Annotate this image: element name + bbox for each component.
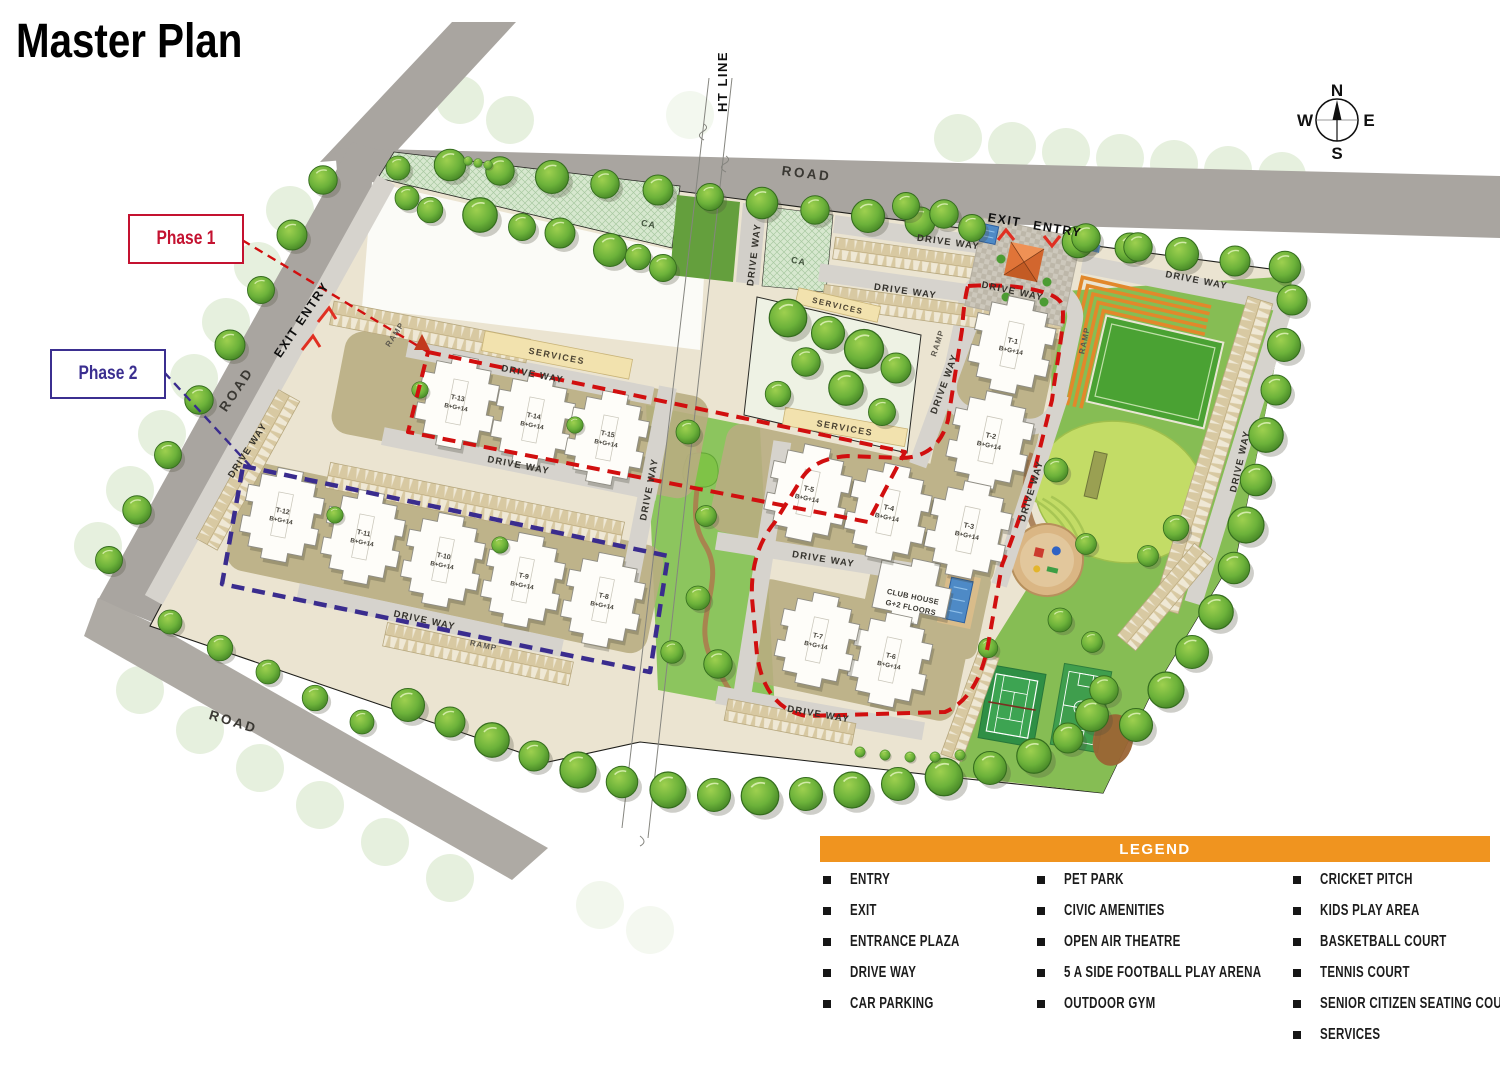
compass-west-label: W bbox=[1297, 111, 1314, 130]
legend-item-label: ENTRANCE PLAZA bbox=[850, 933, 960, 951]
bullet-square-icon bbox=[823, 1000, 831, 1008]
phase2-label-box: Phase 2 bbox=[50, 349, 166, 399]
bullet-square-icon bbox=[1293, 1000, 1301, 1008]
legend-item-label: CIVIC AMENITIES bbox=[1064, 902, 1165, 920]
shrub-icon bbox=[236, 744, 284, 792]
shrub-icon bbox=[361, 818, 409, 866]
compass-east-label: E bbox=[1363, 111, 1374, 130]
bullet-square-icon bbox=[823, 876, 831, 884]
tree-icon bbox=[302, 685, 331, 714]
road-branch-top-left bbox=[320, 22, 516, 162]
legend-item: ENTRY bbox=[823, 864, 1002, 895]
legend-item-label: ENTRY bbox=[850, 871, 890, 889]
compass-north-label: N bbox=[1331, 81, 1343, 100]
legend-column-1: ENTRY EXIT ENTRANCE PLAZA DRIVE WAY CAR … bbox=[823, 864, 1002, 1019]
master-plan-page: SERVICES SERVICES SERVICES CLUB HOUSE G+… bbox=[0, 0, 1500, 1079]
legend-item: CAR PARKING bbox=[823, 988, 1002, 1019]
page-title: Master Plan bbox=[16, 14, 242, 69]
bullet-square-icon bbox=[823, 969, 831, 977]
legend-item-label: OPEN AIR THEATRE bbox=[1064, 933, 1181, 951]
tree-icon bbox=[1148, 672, 1189, 713]
legend-item-label: PET PARK bbox=[1064, 871, 1124, 889]
tree-icon bbox=[650, 772, 691, 813]
bullet-square-icon bbox=[1293, 1031, 1301, 1039]
bullet-square-icon bbox=[1037, 969, 1045, 977]
legend-item-label: DRIVE WAY bbox=[850, 964, 916, 982]
tree-icon bbox=[790, 778, 827, 815]
tree-icon bbox=[1218, 552, 1254, 588]
legend-item: KIDS PLAY AREA bbox=[1293, 895, 1500, 926]
bullet-square-icon bbox=[823, 938, 831, 946]
tree-icon bbox=[96, 547, 127, 578]
bullet-square-icon bbox=[1293, 938, 1301, 946]
legend-item-label: SENIOR CITIZEN SEATING COURT bbox=[1320, 995, 1500, 1013]
legend-item-label: CAR PARKING bbox=[850, 995, 934, 1013]
legend-item-label: KIDS PLAY AREA bbox=[1320, 902, 1420, 920]
legend-item-label: CRICKET PITCH bbox=[1320, 871, 1413, 889]
shrub-icon bbox=[486, 96, 534, 144]
legend-item: SENIOR CITIZEN SEATING COURT bbox=[1293, 988, 1500, 1019]
shrub-icon bbox=[426, 854, 474, 902]
phase1-label: Phase 1 bbox=[157, 228, 216, 250]
shrub-icon bbox=[626, 906, 674, 954]
legend-item-label: BASKETBALL COURT bbox=[1320, 933, 1447, 951]
bullet-square-icon bbox=[823, 907, 831, 915]
legend-column-3: CRICKET PITCH KIDS PLAY AREA BASKETBALL … bbox=[1293, 864, 1500, 1050]
legend-item-label: EXIT bbox=[850, 902, 877, 920]
shrub-icon bbox=[576, 881, 624, 929]
legend-item-label: TENNIS COURT bbox=[1320, 964, 1410, 982]
legend-item: BASKETBALL COURT bbox=[1293, 926, 1500, 957]
legend-item: ENTRANCE PLAZA bbox=[823, 926, 1002, 957]
bullet-square-icon bbox=[1037, 907, 1045, 915]
tree-icon bbox=[606, 766, 642, 802]
legend-item: EXIT bbox=[823, 895, 1002, 926]
compass-south-label: S bbox=[1331, 144, 1342, 163]
bullet-square-icon bbox=[1037, 876, 1045, 884]
legend-item: DRIVE WAY bbox=[823, 957, 1002, 988]
legend-item: SERVICES bbox=[1293, 1019, 1500, 1050]
phase2-label: Phase 2 bbox=[79, 363, 138, 385]
phase1-label-box: Phase 1 bbox=[128, 214, 244, 264]
tree-icon bbox=[741, 777, 784, 820]
legend-item: TENNIS COURT bbox=[1293, 957, 1500, 988]
bullet-square-icon bbox=[1293, 876, 1301, 884]
legend-item-label: SERVICES bbox=[1320, 1026, 1380, 1044]
legend-item-label: OUTDOOR GYM bbox=[1064, 995, 1155, 1013]
ht-line-label: HT LINE bbox=[715, 51, 730, 112]
shrub-icon bbox=[296, 781, 344, 829]
tree-icon bbox=[350, 710, 377, 737]
compass-icon: N S W E bbox=[1297, 81, 1375, 163]
entrance-pavilion bbox=[1004, 242, 1044, 282]
bullet-square-icon bbox=[1293, 907, 1301, 915]
legend-item-label: 5 A SIDE FOOTBALL PLAY ARENA bbox=[1064, 964, 1261, 982]
bullet-square-icon bbox=[1293, 969, 1301, 977]
bullet-square-icon bbox=[1037, 1000, 1045, 1008]
tree-icon bbox=[834, 772, 875, 813]
shrub-icon bbox=[988, 122, 1036, 170]
tree-icon bbox=[1176, 636, 1213, 673]
legend-item: CRICKET PITCH bbox=[1293, 864, 1500, 895]
legend-header: LEGEND bbox=[820, 836, 1490, 862]
tree-icon bbox=[560, 752, 601, 793]
bullet-square-icon bbox=[1037, 938, 1045, 946]
tree-icon bbox=[1199, 595, 1238, 634]
shrub-icon bbox=[934, 114, 982, 162]
tree-icon bbox=[698, 779, 735, 816]
